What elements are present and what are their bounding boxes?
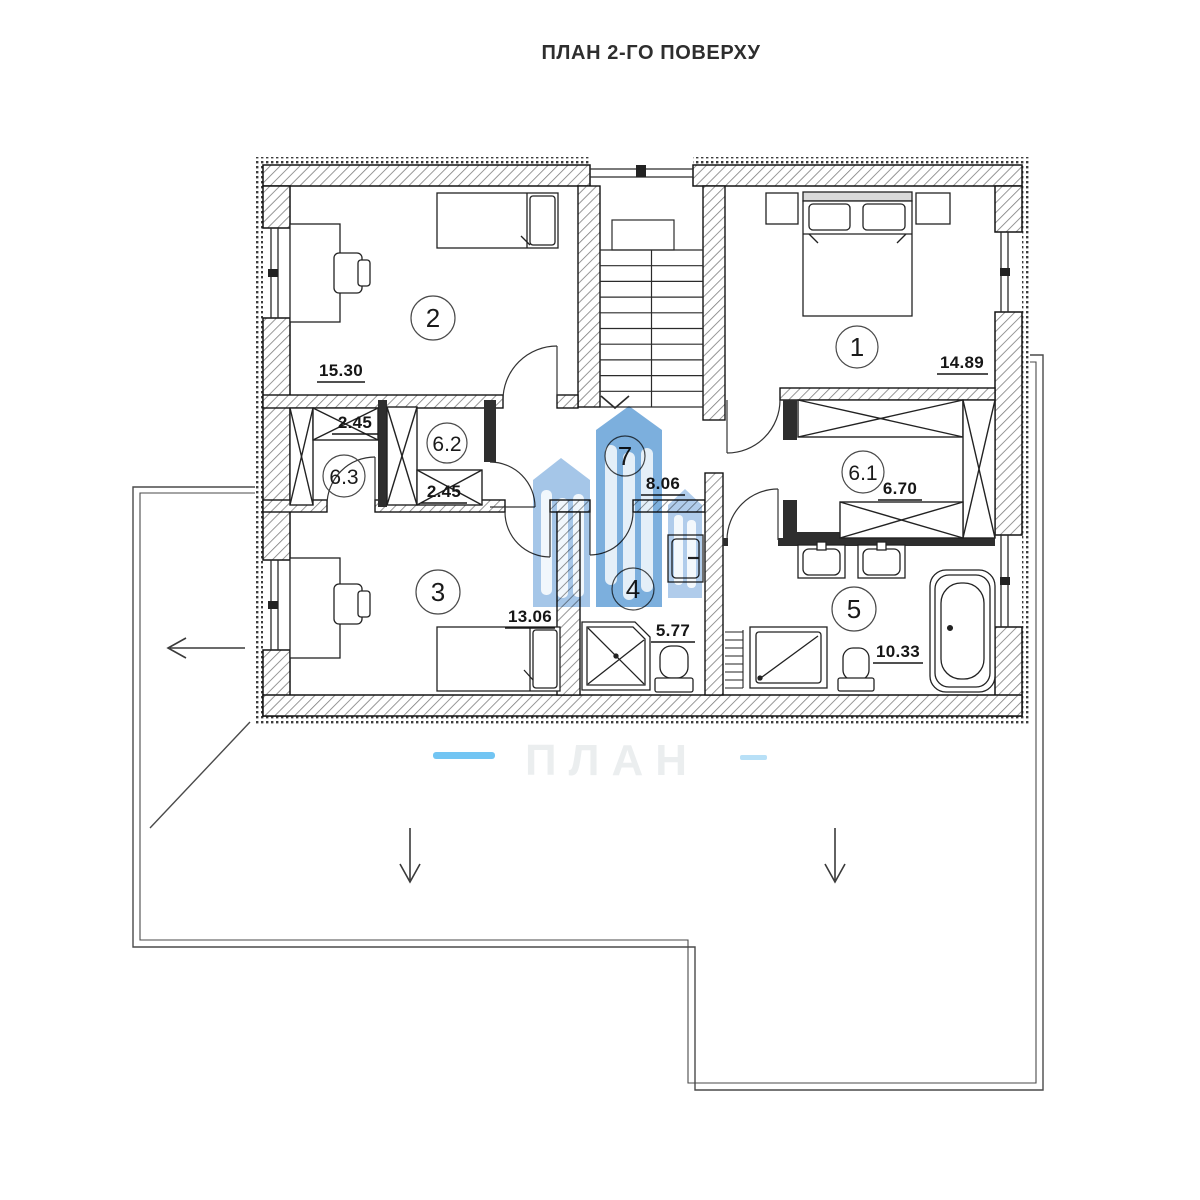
page-title: ПЛАН 2-ГО ПОВЕРХУ — [541, 42, 760, 64]
stairs-down-arrow-icon — [601, 396, 629, 408]
watermark-ghost-text: ПЛАН — [525, 736, 699, 785]
room1-area: 14.89 — [940, 353, 984, 372]
svg-text:2: 2 — [426, 303, 440, 333]
room6-2-label: 6.2 2.45 — [421, 423, 467, 503]
room2-desk — [290, 224, 370, 322]
staircase — [600, 220, 703, 408]
svg-text:3: 3 — [431, 577, 445, 607]
room2-area: 15.30 — [319, 361, 363, 380]
svg-text:6.2: 6.2 — [432, 433, 461, 456]
door-room2 — [503, 346, 557, 400]
watermark-underline-accent — [433, 752, 495, 759]
bathroom4-toilet — [655, 646, 693, 692]
bathroom5-sink-left — [798, 542, 845, 578]
floor-plan-page: ПЛАН 2-ГО ПОВЕРХУ — [0, 0, 1200, 1200]
room4-area: 5.77 — [656, 621, 690, 640]
door-room1 — [727, 400, 780, 453]
wardrobe-6-1 — [798, 400, 995, 538]
room1-nightstand-left — [766, 193, 798, 224]
room3-desk — [290, 558, 370, 658]
window-room1 — [1000, 232, 1010, 312]
room6-1-area: 6.70 — [883, 479, 917, 498]
room2-bed — [437, 193, 558, 248]
window-room3 — [268, 560, 278, 650]
watermark-buildings-icon — [533, 406, 702, 607]
room6-1-label: 6.1 6.70 — [842, 451, 922, 500]
room1-bed — [803, 192, 912, 316]
bathroom4-shower — [582, 622, 650, 690]
bathroom5-toilet — [838, 648, 874, 691]
window-stairwell — [590, 165, 693, 177]
room1-nightstand-right — [916, 193, 950, 224]
arrow-down-icon — [400, 828, 420, 882]
room6-2-area: 2.45 — [427, 482, 461, 501]
room6-3-area: 2.45 — [338, 413, 372, 432]
window-bathroom5 — [1000, 535, 1010, 627]
bathroom5-radiator — [725, 630, 743, 688]
room3-area: 13.06 — [508, 607, 552, 626]
arrow-left-icon — [168, 638, 245, 658]
roof-hip-line — [150, 722, 250, 828]
window-room2 — [268, 228, 278, 318]
svg-text:6.1: 6.1 — [848, 462, 877, 485]
svg-text:1: 1 — [850, 332, 864, 362]
door-bathroom5 — [727, 489, 778, 540]
room1-label: 1 14.89 — [836, 326, 988, 374]
room3-bed — [437, 627, 560, 691]
bathroom5-bathtub — [930, 570, 995, 692]
svg-text:5: 5 — [847, 594, 861, 624]
floor-plan-drawing: ПЛАН 2-ГО ПОВЕРХУ — [0, 0, 1200, 1200]
svg-text:6.3: 6.3 — [329, 466, 358, 489]
room5-area: 10.33 — [876, 642, 920, 661]
bathroom5-shower-tray — [750, 627, 827, 688]
bathroom5-sink-right — [858, 542, 905, 578]
arrow-down-icon — [825, 828, 845, 882]
watermark-underline-accent-light — [740, 755, 767, 760]
